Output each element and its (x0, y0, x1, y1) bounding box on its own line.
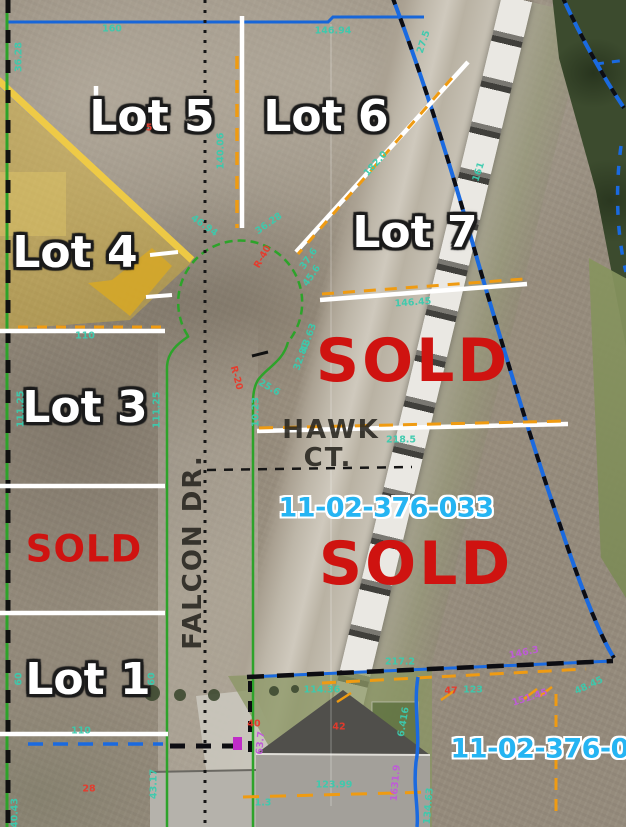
survey-16: 36.28 (14, 42, 24, 72)
survey-35: 60 (147, 672, 157, 685)
survey-48: R-20 (228, 365, 244, 391)
hawk-ct-label-line2: CT. (304, 445, 353, 471)
lot-6-label: Lot 6 (263, 95, 388, 139)
survey-57: 1631.9 (390, 764, 403, 801)
survey-53: 47 (444, 686, 457, 696)
sold-label-bottom: SOLD (319, 534, 513, 594)
survey-56: 151.45 (511, 688, 549, 708)
survey-18: 140.06 (216, 133, 226, 170)
survey-21: 46.94 (189, 213, 219, 238)
survey-31: 110 (75, 331, 95, 341)
survey-40: 114.36 (304, 685, 341, 695)
survey-30: 218.5 (386, 435, 416, 445)
map-annotations: Lot 5Lot 6Lot 7Lot 4Lot 3Lot 1SOLDSOLDSO… (0, 0, 626, 827)
survey-22: 36.28 (254, 211, 284, 236)
survey-14: 160 (102, 24, 122, 34)
survey-33: 111.25 (152, 392, 162, 429)
survey-20: 161 (471, 161, 486, 183)
survey-45: 6.416 (397, 706, 412, 737)
survey-29: 10.23 (251, 397, 261, 427)
lot-7-label: Lot 7 (352, 211, 477, 255)
survey-41: 123.99 (316, 780, 353, 790)
survey-38: 40.43 (10, 798, 20, 827)
aerial-plat-map: Lot 5Lot 6Lot 7Lot 4Lot 3Lot 1SOLDSOLDSO… (0, 0, 626, 827)
survey-54: 63.7 (255, 731, 267, 755)
survey-32: 111.25 (16, 391, 26, 428)
survey-49: 5 (146, 123, 153, 133)
survey-51: 40 (247, 719, 260, 729)
survey-47: R-40 (253, 244, 273, 270)
lot-4-label: Lot 4 (12, 231, 137, 275)
lot-1-label: Lot 1 (25, 658, 150, 702)
survey-36: 110 (71, 726, 91, 736)
lot-3-label: Lot 3 (22, 386, 147, 430)
survey-39: 217.2 (385, 657, 415, 667)
survey-37: 43.17 (149, 769, 159, 799)
survey-27: 146.45 (394, 297, 431, 309)
parcel-number-2: 11-02-376-033 (451, 736, 626, 763)
survey-42: 134.63 (423, 787, 436, 824)
survey-50: 28 (82, 784, 95, 794)
survey-19: 182.0 (362, 150, 389, 179)
falcon-dr-label: FALCON DR. (180, 454, 206, 649)
survey-26: 32.81 (292, 340, 311, 371)
survey-55: 146.3 (508, 645, 539, 661)
survey-28: 25.6 (256, 378, 281, 398)
survey-17: 27.5 (416, 29, 432, 54)
sold-label-center: SOLD (316, 331, 510, 391)
survey-34: 60 (14, 672, 24, 685)
survey-46: 1.3 (255, 798, 272, 808)
hawk-ct-label-line1: HAWK (282, 417, 380, 443)
survey-43: 123 (463, 685, 483, 695)
survey-44: 48.45 (573, 675, 604, 696)
survey-52: 42 (332, 722, 345, 732)
survey-15: 146.94 (315, 26, 352, 36)
parcel-number-1: 11-02-376-033 (279, 495, 494, 522)
sold-label-lot2: SOLD (26, 531, 142, 568)
